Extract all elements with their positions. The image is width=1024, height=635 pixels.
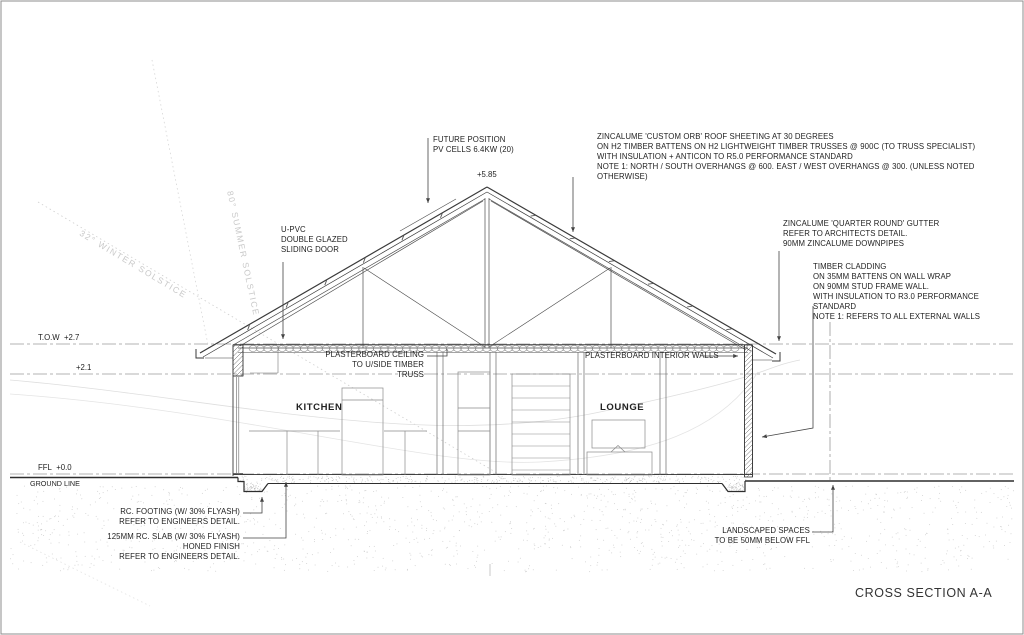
cladding-note: TIMBER CLADDING ON 35MM BATTENS ON WALL … <box>813 262 1024 322</box>
ground-line-label: GROUND LINE <box>30 479 80 488</box>
interior-walls-note: PLASTERBOARD INTERIOR WALLS <box>585 351 719 361</box>
pv-note: FUTURE POSITION PV CELLS 6.4KW (20) <box>433 135 514 155</box>
roof <box>196 187 780 361</box>
ceiling-note: PLASTERBOARD CEILING TO U/SIDE TIMBER TR… <box>324 350 424 380</box>
landscape-note: LANDSCAPED SPACES TO BE 50MM BELOW FFL <box>690 526 810 546</box>
level-tow: T.O.W +2.7 <box>38 333 79 342</box>
roof-truss <box>233 198 752 353</box>
drawing-sheet: FUTURE POSITION PV CELLS 6.4KW (20) ZINC… <box>0 0 1024 635</box>
footing-note: RC. FOOTING (W/ 30% FLYASH) REFER TO ENG… <box>100 507 240 527</box>
door-note: U-PVC DOUBLE GLAZED SLIDING DOOR <box>281 225 348 255</box>
gutter-note: ZINCALUME 'QUARTER ROUND' GUTTER REFER T… <box>783 219 939 249</box>
roof-note: ZINCALUME 'CUSTOM ORB' ROOF SHEETING AT … <box>597 132 1024 182</box>
apex-level: +5.85 <box>477 170 497 179</box>
slab-and-ground <box>10 475 1014 492</box>
slab-note: 125MM RC. SLAB (W/ 30% FLYASH) HONED FIN… <box>100 532 240 562</box>
furniture <box>249 372 652 475</box>
room-label-lounge: LOUNGE <box>600 402 644 413</box>
level-ffl: FFL +0.0 <box>38 463 72 472</box>
interior-partitions <box>437 352 666 475</box>
level-mid: +2.1 <box>76 363 91 372</box>
room-label-kitchen: KITCHEN <box>296 402 342 413</box>
drawing-title: CROSS SECTION A-A <box>855 586 992 600</box>
